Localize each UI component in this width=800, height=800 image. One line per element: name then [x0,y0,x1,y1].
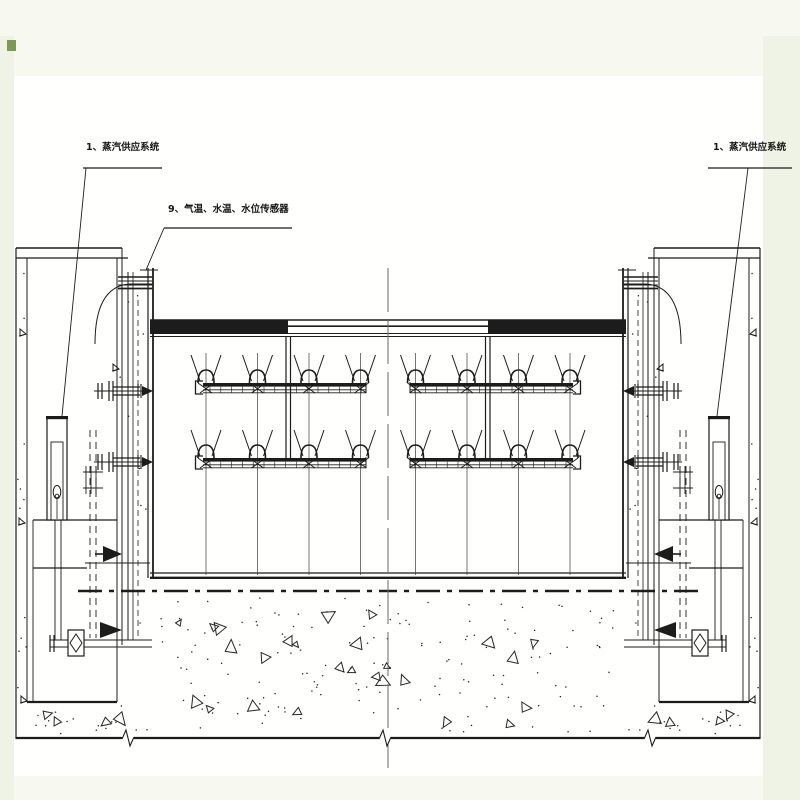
label-steam-supply-right: 1、蒸汽供应系统 [713,141,787,153]
break-symbol-icon [379,730,391,746]
label-steam-supply-left: 1、蒸汽供应系统 [86,141,160,153]
gate-steam-spray-elevation-drawing: 1、蒸汽供应系统9、气温、水温、水位传感器1、蒸汽供应系统 [0,0,800,800]
engineering-drawing-page: 1、蒸汽供应系统9、气温、水温、水位传感器1、蒸汽供应系统 [0,0,800,800]
left-margin-strip [0,36,14,800]
label-sensors: 9、气温、水温、水位传感器 [168,203,289,215]
green-mark [7,40,16,51]
break-symbol-icon [644,730,656,746]
break-symbol-icon [122,730,134,746]
steam-supply-unit [46,416,68,520]
